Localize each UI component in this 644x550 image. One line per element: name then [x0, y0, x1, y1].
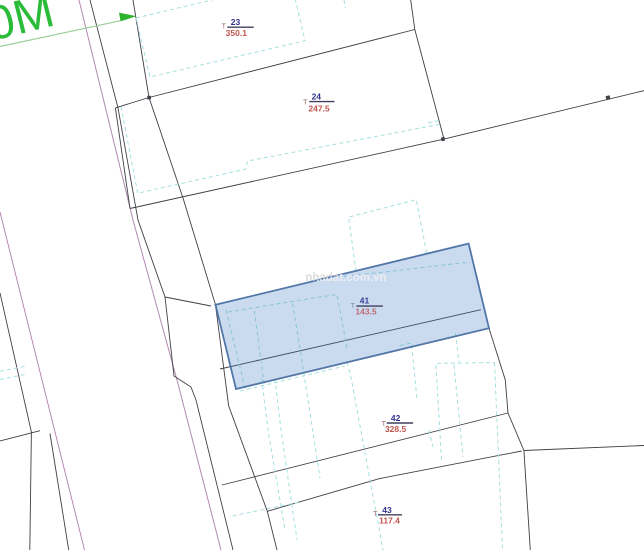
svg-text:247.5: 247.5	[308, 104, 330, 114]
svg-text:350.1: 350.1	[226, 28, 248, 38]
svg-text:23: 23	[231, 17, 241, 27]
svg-text:42: 42	[391, 413, 401, 423]
svg-text:117.4: 117.4	[379, 516, 400, 526]
svg-text:328.5: 328.5	[385, 424, 407, 434]
svg-text:Т: Т	[373, 509, 378, 518]
svg-text:41: 41	[360, 296, 370, 306]
svg-text:43: 43	[382, 505, 392, 515]
svg-text:143.5: 143.5	[355, 307, 377, 317]
svg-text:Т: Т	[303, 97, 308, 106]
svg-text:24: 24	[312, 91, 322, 101]
